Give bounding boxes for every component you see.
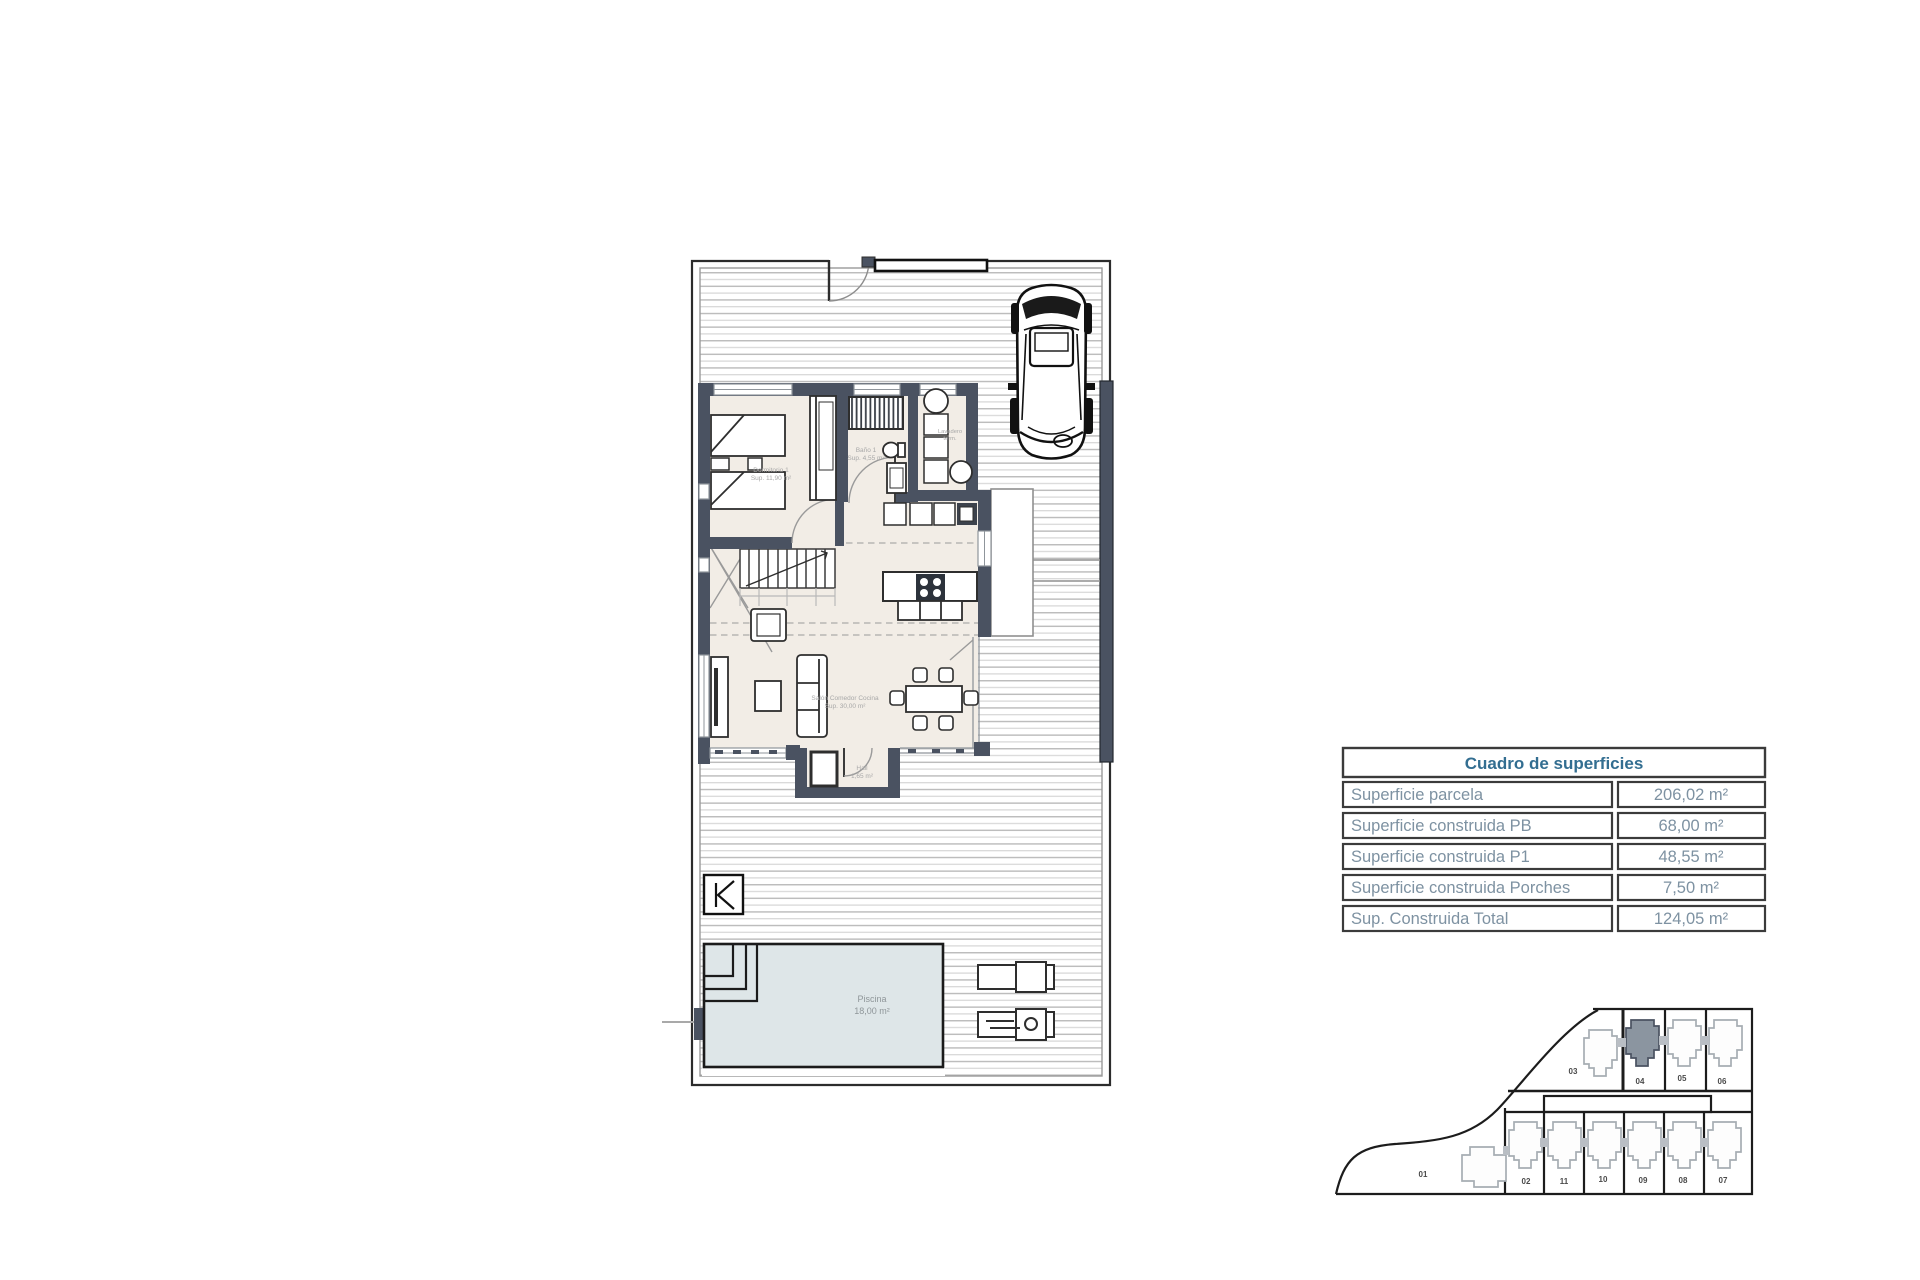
svg-text:Sup. 30,00 m²: Sup. 30,00 m² (825, 703, 867, 710)
svg-text:08: 08 (1679, 1176, 1688, 1185)
svg-text:10: 10 (1599, 1175, 1608, 1184)
svg-text:Superficie construida Porches: Superficie construida Porches (1351, 879, 1570, 897)
svg-text:1,65 m²: 1,65 m² (851, 773, 874, 780)
svg-text:48,55 m²: 48,55 m² (1658, 848, 1724, 866)
svg-text:07: 07 (1719, 1176, 1728, 1185)
svg-text:Sup. 11,90 m²: Sup. 11,90 m² (751, 475, 792, 482)
svg-text:11: 11 (1560, 1177, 1569, 1186)
svg-text:Sup. Construida Total: Sup. Construida Total (1351, 910, 1508, 928)
svg-text:Baño 1: Baño 1 (856, 447, 877, 454)
svg-text:Superficie construida PB: Superficie construida PB (1351, 817, 1532, 835)
svg-text:Dormitorio 1: Dormitorio 1 (753, 467, 789, 474)
svg-text:02: 02 (1522, 1177, 1531, 1186)
svg-text:Cuadro de superficies: Cuadro de superficies (1465, 754, 1644, 773)
svg-text:04: 04 (1636, 1077, 1645, 1086)
svg-text:206,02 m²: 206,02 m² (1654, 786, 1729, 804)
svg-text:Hall: Hall (856, 765, 868, 772)
svg-text:7,50 m²: 7,50 m² (1663, 879, 1719, 897)
svg-text:05: 05 (1678, 1074, 1687, 1083)
svg-text:68,00 m²: 68,00 m² (1658, 817, 1724, 835)
svg-text:06: 06 (1718, 1077, 1727, 1086)
svg-text:Superficie construida P1: Superficie construida P1 (1351, 848, 1530, 866)
svg-text:Salón Comedor Cocina: Salón Comedor Cocina (811, 695, 879, 702)
svg-text:Lavadero: Lavadero (938, 429, 962, 435)
svg-text:01: 01 (1419, 1170, 1428, 1179)
svg-text:09: 09 (1639, 1176, 1648, 1185)
svg-text:124,05 m²: 124,05 m² (1654, 910, 1729, 928)
svg-text:18,00 m²: 18,00 m² (854, 1006, 890, 1016)
svg-text:Piscina: Piscina (857, 994, 886, 1004)
svg-text:03: 03 (1569, 1067, 1578, 1076)
svg-text:term.: term. (943, 436, 957, 442)
svg-text:Sup. 4,55 m²: Sup. 4,55 m² (847, 455, 885, 462)
svg-text:Superficie parcela: Superficie parcela (1351, 786, 1484, 804)
